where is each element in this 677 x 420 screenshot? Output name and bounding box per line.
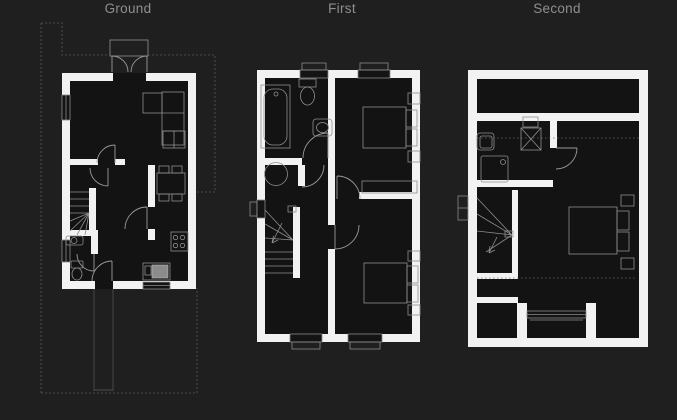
garden-path [94, 289, 113, 391]
first-floor-plan [250, 63, 420, 349]
ground-floor-plan [41, 23, 215, 393]
porch-canopy [110, 40, 148, 56]
first-interior [257, 70, 420, 342]
second-floor-plan [458, 70, 648, 347]
second-interior [468, 70, 648, 347]
french-doors [112, 56, 147, 72]
kitchen-sink [152, 265, 168, 278]
second-left-window [458, 196, 468, 220]
ground-interior [62, 73, 196, 289]
floor-plans-canvas [0, 0, 677, 420]
